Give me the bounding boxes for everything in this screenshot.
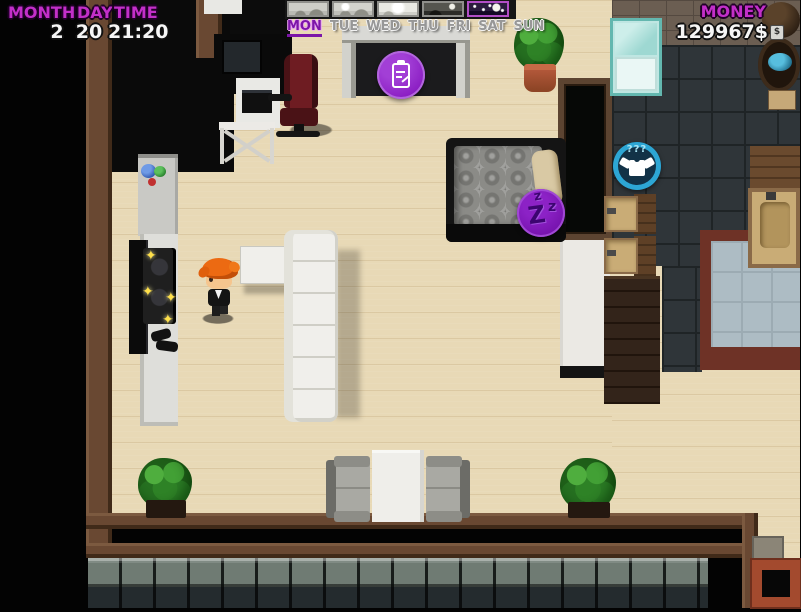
toilet xyxy=(758,38,800,92)
wooden-shelf xyxy=(750,146,800,190)
day-label: DAY xyxy=(77,3,113,22)
faucet-icon xyxy=(766,192,776,200)
sleep-button[interactable]: z Z z xyxy=(517,189,565,237)
weather-tile-night-selected xyxy=(467,1,509,17)
console-table-leg xyxy=(456,43,470,98)
player-character xyxy=(196,256,242,328)
sink-basin xyxy=(604,196,638,232)
clipboard-clip xyxy=(397,60,405,65)
sink-basin xyxy=(760,202,790,248)
weather-tile-dusk-moon xyxy=(422,1,464,17)
weather-forecast-strip xyxy=(287,1,509,17)
left-wall xyxy=(86,0,112,558)
chair-armrest xyxy=(268,94,292,101)
shower-glass-bottom xyxy=(615,57,657,91)
calendar-day-sun: SUN xyxy=(514,19,545,37)
toilet-water xyxy=(768,53,792,71)
calendar-day-thu: THU xyxy=(408,19,438,37)
sparkle-icon: ✦ xyxy=(165,290,177,306)
calendar-day-mon: MON xyxy=(287,19,322,37)
money-label: MONEY xyxy=(610,2,766,21)
side-table xyxy=(372,450,424,522)
calendar-day-fri: FRI xyxy=(447,19,471,37)
wardrobe-label: ??? xyxy=(613,144,661,155)
time-value: 21:20 xyxy=(108,21,168,43)
computer-monitor xyxy=(222,40,262,74)
sink-basin xyxy=(604,238,638,274)
faucet-icon xyxy=(607,208,616,214)
armchair-armrest xyxy=(334,456,370,467)
white-wall-base xyxy=(560,366,610,378)
plant-base xyxy=(568,502,610,518)
stone-path-shaded xyxy=(88,587,708,608)
bottom-wall-outer xyxy=(86,543,744,558)
armchair-armrest xyxy=(426,456,462,467)
porch-frame xyxy=(752,560,800,607)
weather-tile-overcast xyxy=(287,1,329,17)
schedule-button[interactable] xyxy=(377,51,425,99)
couch-shadow xyxy=(336,250,360,418)
weekday-strip: MON TUE WED THU FRI SAT SUN xyxy=(287,19,544,37)
corner-sink xyxy=(748,188,800,268)
calendar-day-tue: TUE xyxy=(330,19,358,37)
chair-legs xyxy=(276,131,320,137)
faucet-icon xyxy=(607,250,616,256)
armchair-armrest xyxy=(426,511,462,522)
armchair-armrest xyxy=(334,511,370,522)
sparkle-icon: ✦ xyxy=(145,248,157,264)
game-screen: ✦ ✦ ✦ ✦ xyxy=(0,0,801,612)
weather-tile-sunny xyxy=(377,1,419,17)
plant-base xyxy=(146,500,186,518)
clipboard-line xyxy=(396,76,402,78)
armchair-left xyxy=(326,456,372,522)
gaming-chair xyxy=(262,50,326,140)
sparkle-icon: ✦ xyxy=(142,284,154,300)
armchair-right xyxy=(424,456,470,522)
terracotta-pot xyxy=(524,64,556,92)
wall-sink-2 xyxy=(604,236,656,276)
money-badge-icon: $ xyxy=(770,25,784,40)
armchair-seat xyxy=(336,464,370,514)
sparkle-icon: ✦ xyxy=(162,312,174,328)
weather-tile-overcast-sun xyxy=(332,1,374,17)
bathroom-cabinet xyxy=(604,276,660,404)
toilet-base xyxy=(768,90,796,110)
wall-shelf xyxy=(204,0,242,14)
armchair-seat xyxy=(426,464,460,514)
zzz-icon: Z xyxy=(526,202,547,228)
clipboard-line xyxy=(396,71,405,73)
stone-path xyxy=(88,558,708,587)
wardrobe-button[interactable]: ??? xyxy=(613,142,661,190)
calendar-day-sat: SAT xyxy=(478,19,505,37)
couch-section xyxy=(240,246,288,284)
time-label: TIME xyxy=(114,3,158,22)
grocery-item-red xyxy=(148,178,156,186)
white-couch xyxy=(284,230,338,422)
white-wall-segment xyxy=(560,240,610,370)
fridge xyxy=(138,154,178,236)
grocery-item-green xyxy=(154,166,166,177)
console-table-leg xyxy=(342,43,356,98)
tshirt-icon xyxy=(629,160,645,176)
calendar-day-wed: WED xyxy=(366,19,400,37)
month-value: 2 xyxy=(45,21,69,43)
month-label: MONTH xyxy=(8,3,75,22)
wall-sink-1 xyxy=(604,194,656,234)
bathroom-tile-floor-ext xyxy=(662,266,702,372)
money-value: 129967$ xyxy=(675,21,768,43)
day-value: 20 xyxy=(74,21,104,43)
money-hud: MONEY 129967$ $ xyxy=(610,2,792,43)
zzz-icon: z xyxy=(548,200,556,214)
